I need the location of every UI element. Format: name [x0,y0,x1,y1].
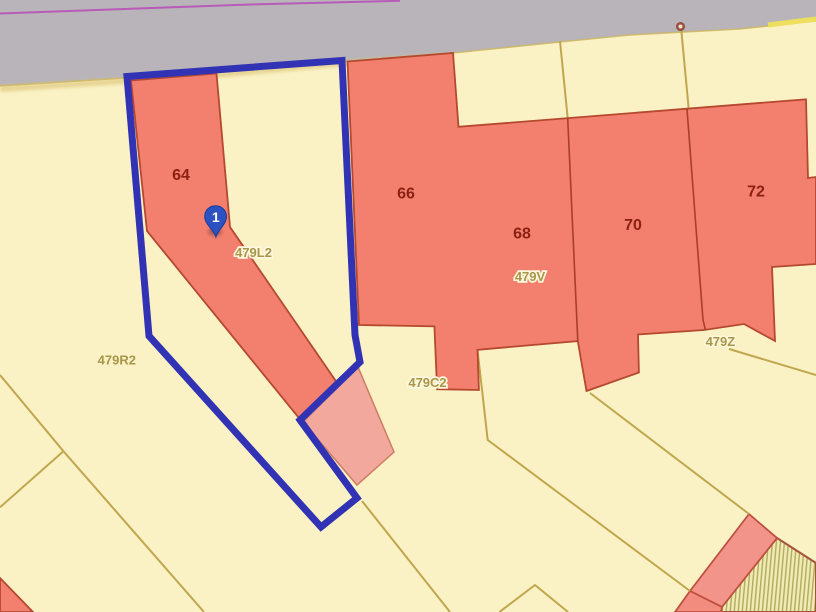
svg-text:72: 72 [747,184,765,201]
svg-text:64: 64 [172,167,190,184]
svg-text:479V: 479V [515,269,546,284]
svg-text:479R2: 479R2 [98,353,136,368]
svg-text:479Z: 479Z [706,334,736,349]
svg-text:479L2: 479L2 [235,245,272,260]
svg-text:68: 68 [513,226,531,243]
svg-text:66: 66 [397,186,415,203]
svg-text:70: 70 [624,217,642,234]
svg-text:479C2: 479C2 [408,375,446,390]
svg-text:1: 1 [212,209,220,225]
